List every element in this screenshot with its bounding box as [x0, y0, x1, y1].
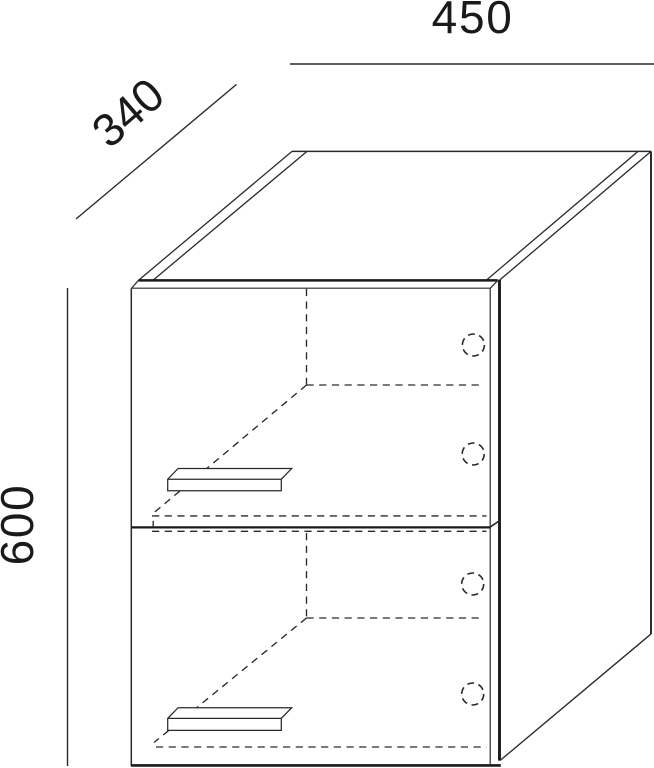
svg-text:600: 600	[0, 484, 43, 566]
svg-text:450: 450	[432, 0, 514, 43]
